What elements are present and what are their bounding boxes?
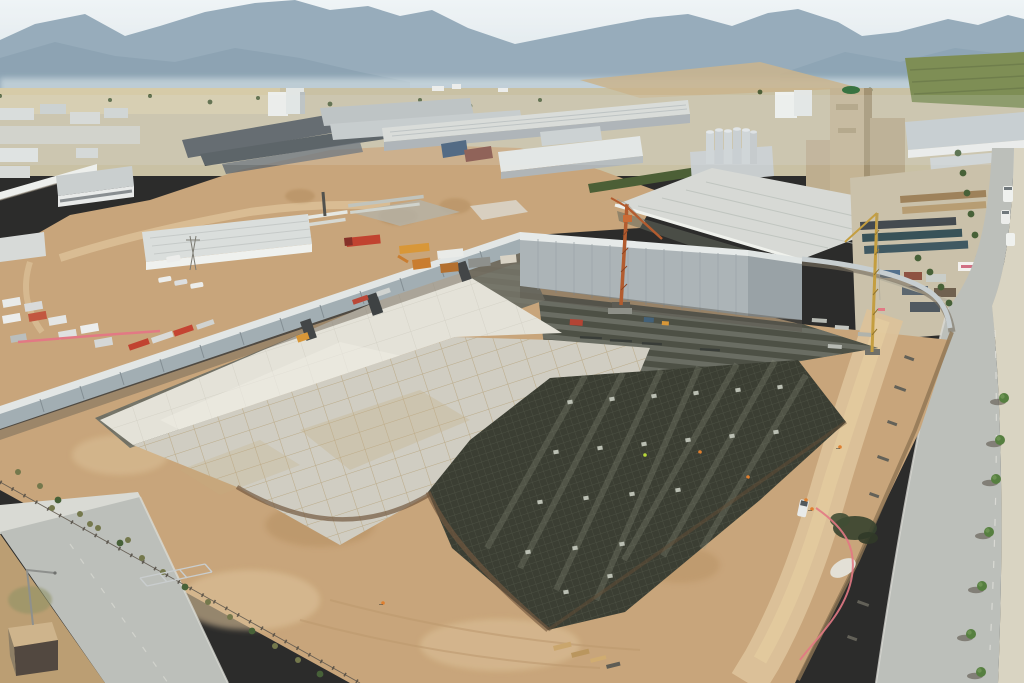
aerial-photo-construction-site	[0, 0, 1024, 683]
photo-tone	[0, 0, 1024, 683]
photo-canvas	[0, 0, 1024, 683]
